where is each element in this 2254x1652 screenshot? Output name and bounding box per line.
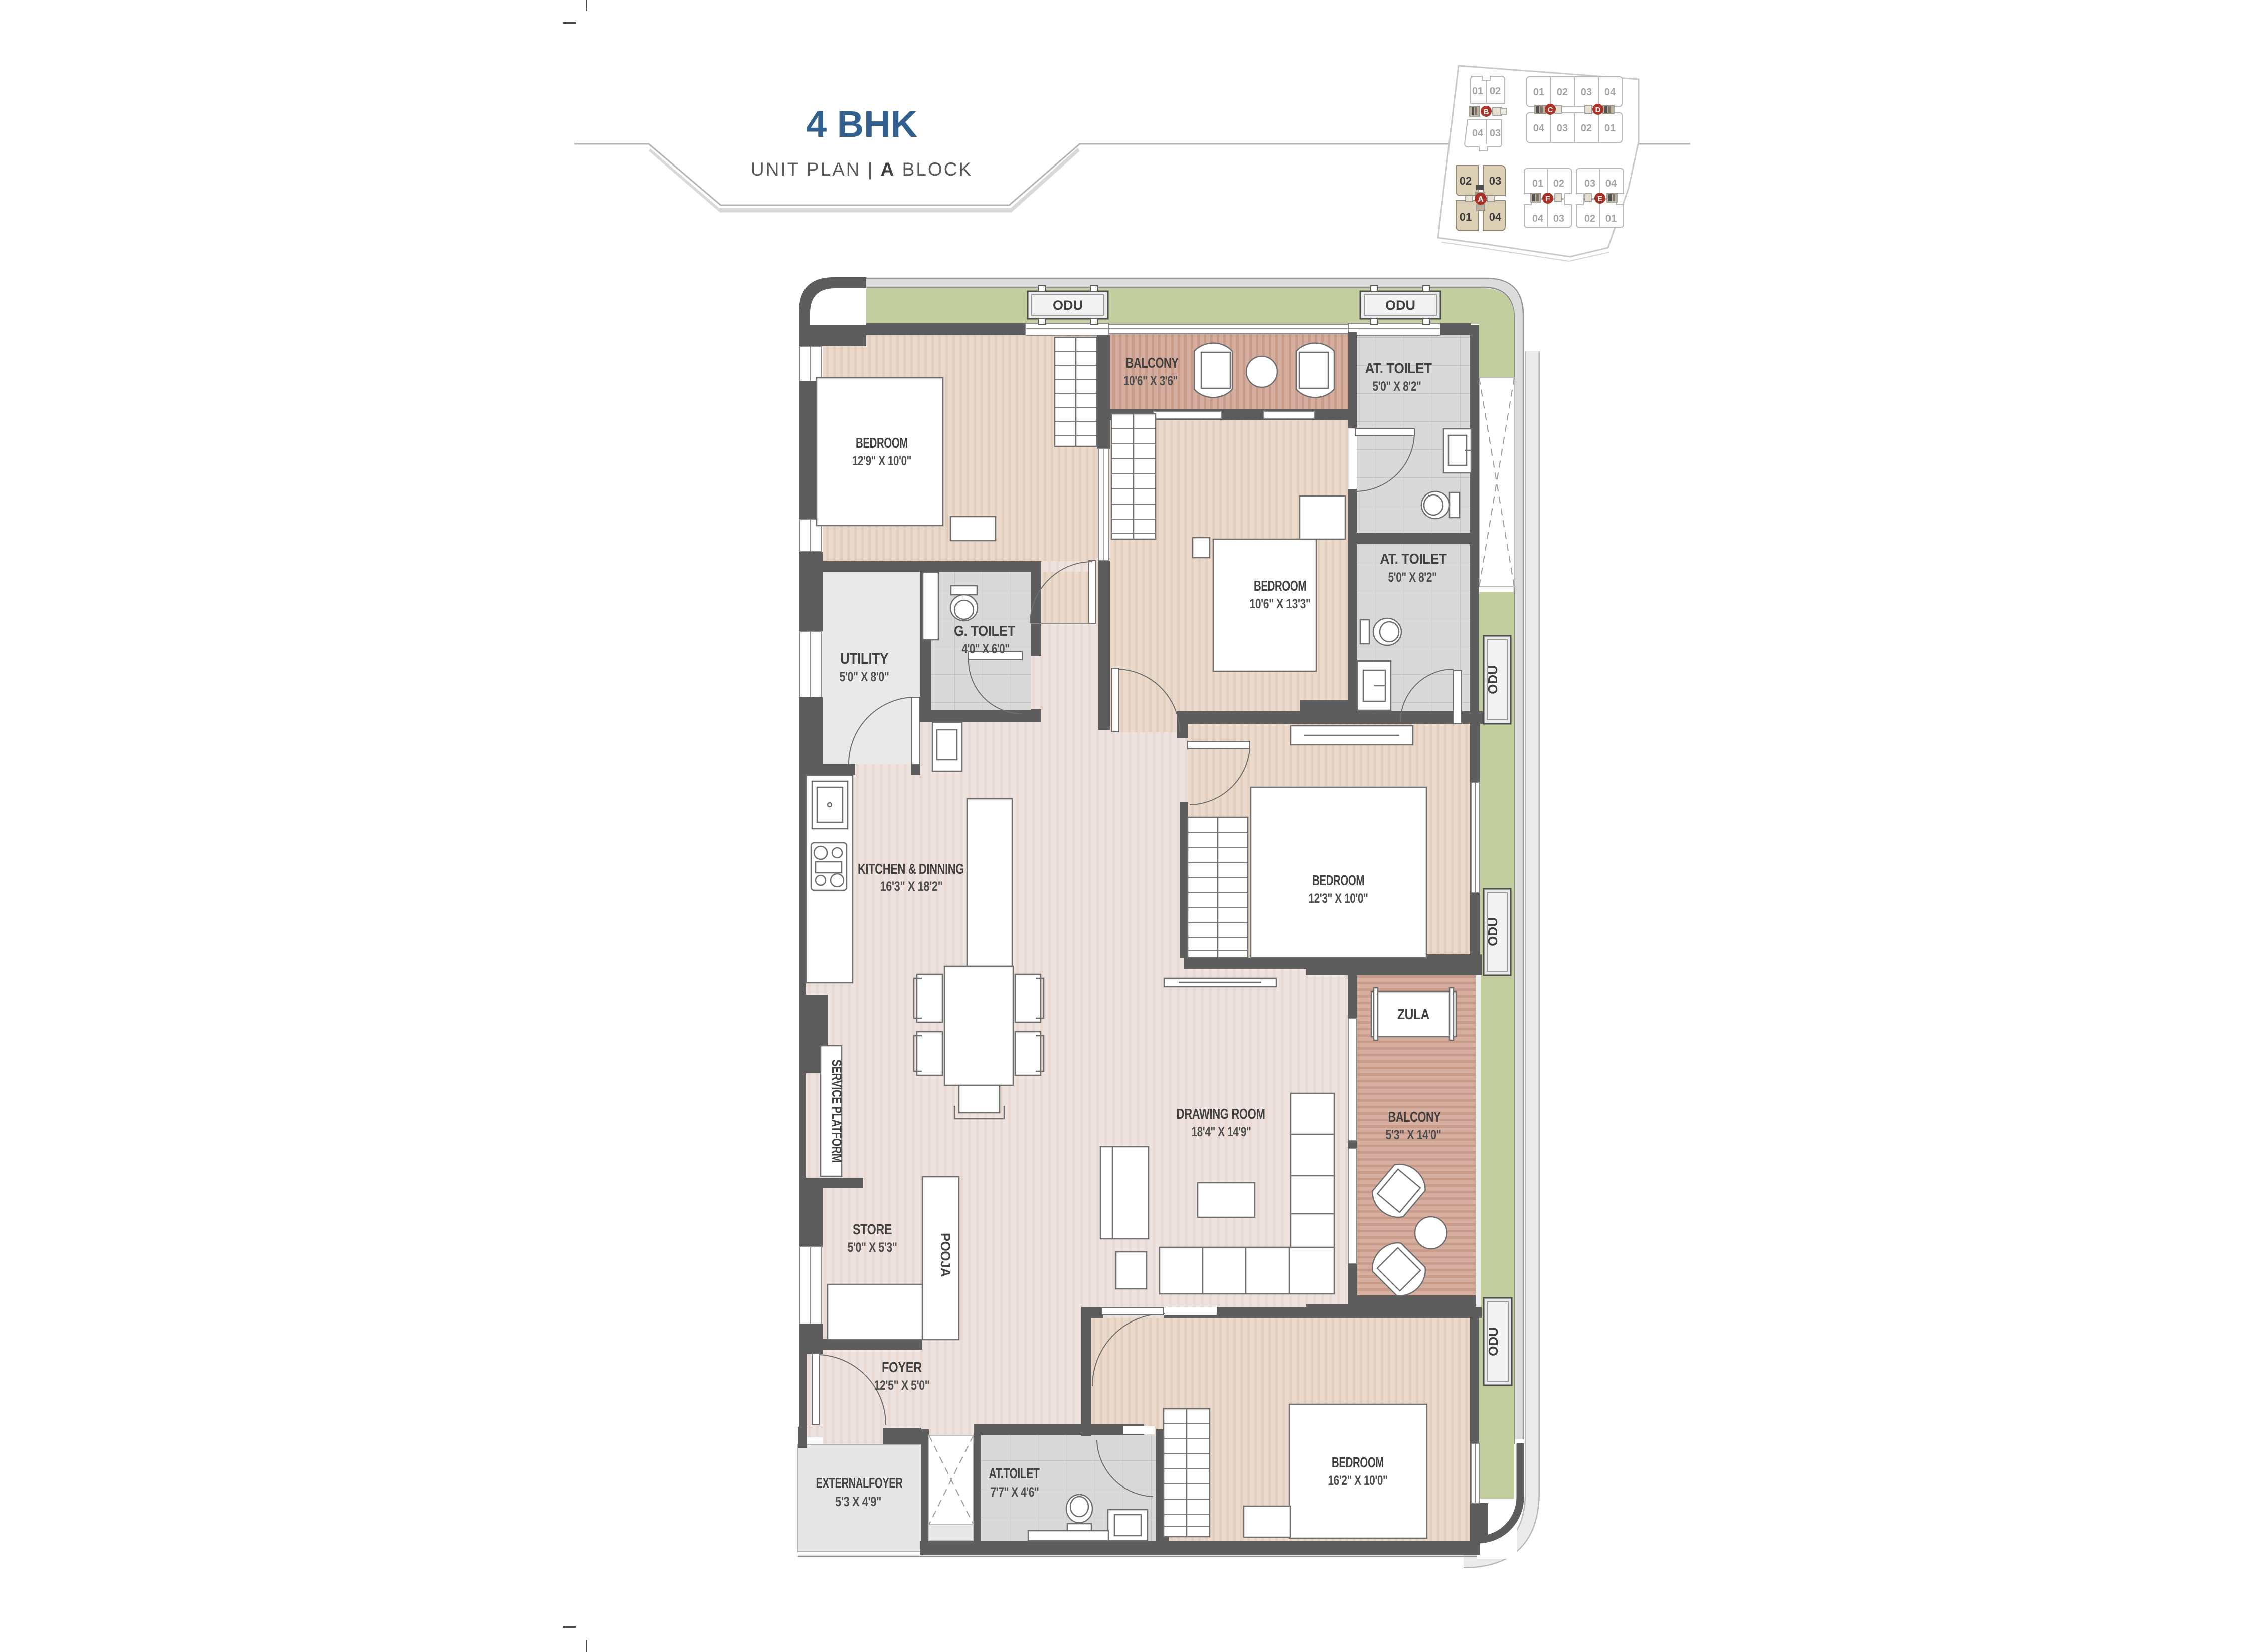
svg-text:BEDROOM: BEDROOM xyxy=(856,435,908,451)
svg-text:B: B xyxy=(1484,108,1489,116)
svg-text:02: 02 xyxy=(1584,213,1595,224)
svg-text:EXTERNALFOYER: EXTERNALFOYER xyxy=(816,1475,903,1492)
svg-text:01: 01 xyxy=(1605,213,1617,224)
svg-text:5'0" X 8'0": 5'0" X 8'0" xyxy=(840,669,889,684)
svg-text:03: 03 xyxy=(1553,213,1564,224)
svg-text:E: E xyxy=(1597,195,1602,203)
svg-text:KITCHEN & DINNING: KITCHEN & DINNING xyxy=(858,861,964,877)
svg-text:10'6" X 3'6": 10'6" X 3'6" xyxy=(1123,373,1178,388)
svg-text:01: 01 xyxy=(1533,87,1544,98)
svg-text:BALCONY: BALCONY xyxy=(1388,1109,1441,1125)
svg-text:5'0" X 8'2": 5'0" X 8'2" xyxy=(1373,379,1421,394)
svg-text:A: A xyxy=(1478,195,1484,204)
svg-text:UTILITY: UTILITY xyxy=(840,651,888,667)
svg-text:UNIT PLAN | A BLOCK: UNIT PLAN | A BLOCK xyxy=(751,159,973,180)
svg-text:FOYER: FOYER xyxy=(882,1360,922,1376)
svg-text:7'7" X 4'6": 7'7" X 4'6" xyxy=(991,1484,1039,1500)
svg-text:01: 01 xyxy=(1604,123,1616,134)
svg-text:DRAWING ROOM: DRAWING ROOM xyxy=(1177,1106,1265,1122)
svg-text:16'2" X 10'0": 16'2" X 10'0" xyxy=(1328,1473,1388,1488)
svg-text:ODU: ODU xyxy=(1485,665,1500,694)
svg-text:F: F xyxy=(1545,195,1550,203)
svg-text:12'9" X 10'0": 12'9" X 10'0" xyxy=(852,453,911,468)
svg-text:02: 02 xyxy=(1553,178,1564,189)
svg-text:04: 04 xyxy=(1605,178,1617,189)
svg-text:12'5" X 5'0": 12'5" X 5'0" xyxy=(874,1378,930,1393)
svg-text:ODU: ODU xyxy=(1486,1327,1501,1356)
svg-text:SERVICE PLATFORM: SERVICE PLATFORM xyxy=(829,1060,844,1163)
svg-text:04: 04 xyxy=(1489,211,1502,223)
svg-text:03: 03 xyxy=(1584,178,1595,189)
svg-text:C: C xyxy=(1548,106,1553,114)
svg-text:02: 02 xyxy=(1581,123,1592,134)
svg-text:16'3" X 18'2": 16'3" X 18'2" xyxy=(880,879,943,894)
svg-text:02: 02 xyxy=(1557,87,1568,98)
svg-text:STORE: STORE xyxy=(853,1222,892,1238)
svg-text:POOJA: POOJA xyxy=(938,1233,953,1277)
svg-text:ODU: ODU xyxy=(1385,298,1415,313)
svg-text:04: 04 xyxy=(1533,123,1545,134)
svg-text:ODU: ODU xyxy=(1053,298,1083,313)
svg-text:01: 01 xyxy=(1460,211,1472,223)
svg-text:5'3" X 14'0": 5'3" X 14'0" xyxy=(1386,1127,1441,1142)
svg-text:D: D xyxy=(1595,106,1601,114)
svg-text:G. TOILET: G. TOILET xyxy=(954,623,1016,639)
svg-text:5'0" X 8'2": 5'0" X 8'2" xyxy=(1388,570,1437,585)
svg-text:BEDROOM: BEDROOM xyxy=(1254,578,1306,594)
svg-text:12'3" X 10'0": 12'3" X 10'0" xyxy=(1309,891,1368,906)
svg-text:03: 03 xyxy=(1490,128,1501,139)
svg-text:5'0" X 5'3": 5'0" X 5'3" xyxy=(848,1240,897,1255)
svg-text:ZULA: ZULA xyxy=(1397,1007,1429,1023)
svg-text:BEDROOM: BEDROOM xyxy=(1312,873,1364,889)
svg-text:ODU: ODU xyxy=(1485,917,1500,946)
svg-text:04: 04 xyxy=(1604,87,1616,98)
svg-text:18'4" X 14'9": 18'4" X 14'9" xyxy=(1192,1124,1251,1139)
svg-text:4 BHK: 4 BHK xyxy=(806,103,917,145)
svg-text:BEDROOM: BEDROOM xyxy=(1332,1455,1384,1471)
svg-text:04: 04 xyxy=(1532,213,1544,224)
svg-text:AT.TOILET: AT.TOILET xyxy=(989,1466,1040,1482)
svg-text:AT. TOILET: AT. TOILET xyxy=(1380,551,1447,567)
svg-text:02: 02 xyxy=(1490,86,1501,97)
svg-text:01: 01 xyxy=(1472,86,1483,97)
svg-text:4'0" X 6'0": 4'0" X 6'0" xyxy=(962,641,1010,656)
svg-text:AT. TOILET: AT. TOILET xyxy=(1365,361,1432,377)
svg-text:03: 03 xyxy=(1489,175,1501,187)
svg-text:04: 04 xyxy=(1472,128,1484,139)
svg-text:10'6" X 13'3": 10'6" X 13'3" xyxy=(1250,596,1311,611)
svg-text:02: 02 xyxy=(1460,175,1472,187)
svg-text:01: 01 xyxy=(1532,178,1543,189)
svg-text:03: 03 xyxy=(1581,87,1592,98)
svg-text:03: 03 xyxy=(1557,123,1568,134)
svg-text:BALCONY: BALCONY xyxy=(1126,355,1179,371)
svg-text:5'3 X 4'9": 5'3 X 4'9" xyxy=(835,1494,881,1509)
